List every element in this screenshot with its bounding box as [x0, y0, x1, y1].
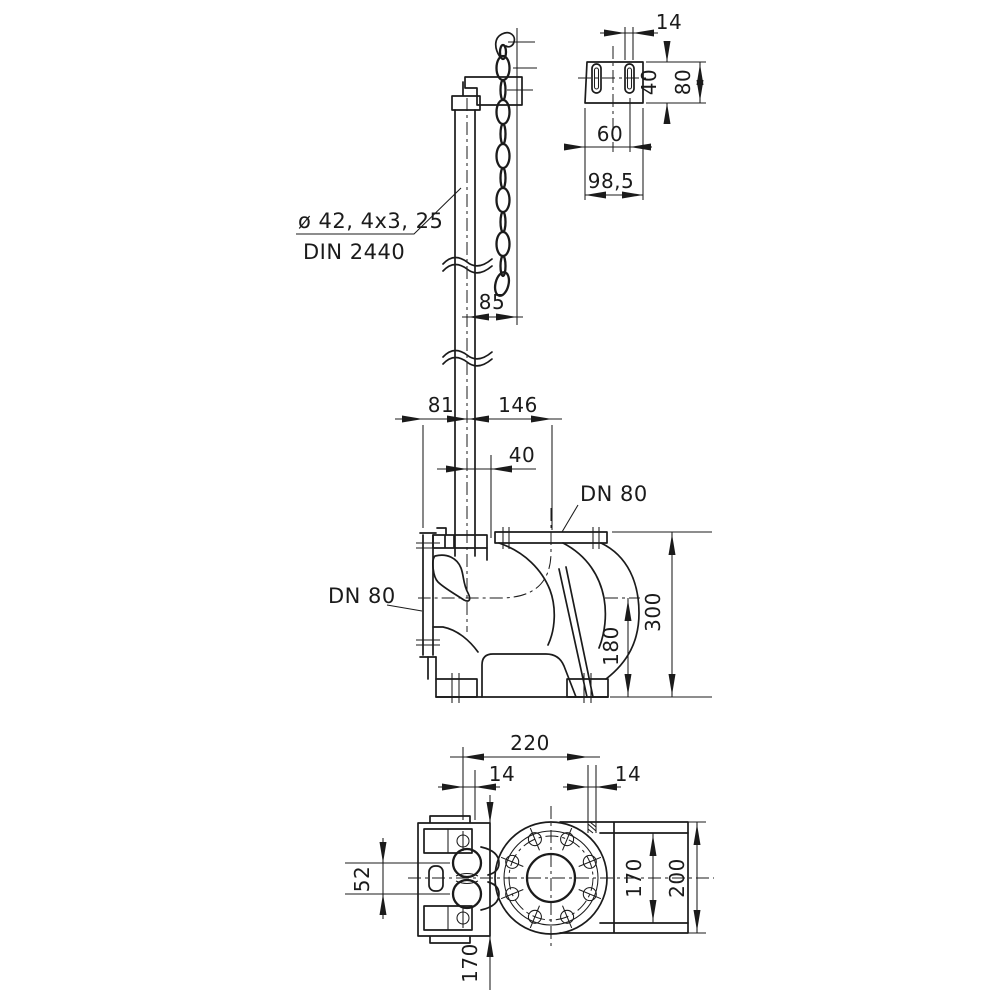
- elevation-elbow: [416, 508, 640, 703]
- chain-link: [497, 100, 510, 124]
- dim-text-14-left: 14: [489, 762, 515, 786]
- flange-labels: DN 80 DN 80: [328, 482, 648, 611]
- dim-line: [395, 419, 562, 530]
- dim-chain-offset: 85: [462, 290, 523, 317]
- bolt-tick: [501, 857, 523, 866]
- chain: [493, 45, 511, 297]
- chain-link: [501, 80, 506, 100]
- dn80-top-leader: [562, 505, 578, 532]
- dim-text-146: 146: [498, 393, 538, 417]
- dim-text-40: 40: [509, 443, 535, 467]
- chain-link: [497, 188, 510, 212]
- support-strut: [559, 567, 593, 697]
- chain-link: [497, 144, 510, 168]
- elbow-throat-curve: [499, 543, 554, 645]
- dn80-side-label: DN 80: [328, 584, 396, 608]
- foot-bolt-ticks: [452, 673, 591, 703]
- dim-heights: 180 300: [599, 532, 712, 697]
- technical-drawing: ø 42, 4x3, 25 DIN 2440 85 81 146 40: [0, 0, 1000, 1000]
- claw-beak: [433, 555, 470, 601]
- bend-centerline: [418, 508, 551, 598]
- bolt-tick: [563, 906, 572, 928]
- dim-plan-depth: 170: [458, 795, 490, 990]
- dim-pipe-offsets: 81 146: [395, 393, 562, 530]
- dim-text-14: 14: [656, 10, 682, 34]
- dim-plan-hole-left: 14: [438, 762, 515, 820]
- dim-text-220: 220: [510, 731, 550, 755]
- bolt-tick: [579, 890, 601, 899]
- plan-view: [408, 765, 714, 950]
- bolt-tick: [530, 828, 539, 850]
- chain-link: [501, 124, 506, 144]
- guide-pipe-hole: [453, 880, 481, 908]
- pipe-cap: [452, 82, 480, 110]
- guide-pipe: [455, 110, 475, 556]
- dim-text-180: 180: [599, 626, 623, 666]
- chain-link: [497, 232, 510, 256]
- pipe-spec-callout: ø 42, 4x3, 25 DIN 2440: [296, 188, 461, 264]
- pipe-standard-label: DIN 2440: [303, 240, 405, 264]
- drawing-page: ø 42, 4x3, 25 DIN 2440 85 81 146 40: [0, 0, 1000, 1000]
- elevation-guide-pipe: [443, 28, 537, 632]
- dim-plan-width: 220: [450, 731, 600, 820]
- dim-text-60: 60: [597, 122, 623, 146]
- dim-text-98-5: 98,5: [588, 169, 635, 193]
- bolt-tick: [501, 890, 523, 899]
- base-arch: [482, 654, 576, 697]
- pipe-spec-label: ø 42, 4x3, 25: [298, 209, 443, 233]
- claw-plate: [433, 528, 487, 548]
- dim-line: [600, 27, 658, 60]
- bolt-tick: [579, 857, 601, 866]
- detail-wall-bracket: 14 40 80 60 98,5: [565, 10, 706, 200]
- dn80-top-label: DN 80: [580, 482, 648, 506]
- dim-text-81: 81: [428, 393, 454, 417]
- dim-line: [450, 747, 600, 820]
- dim-text-40: 40: [637, 69, 661, 95]
- dim-text-80: 80: [671, 69, 695, 95]
- dn80-side-leader: [387, 605, 422, 611]
- base-feet: [436, 679, 608, 697]
- dim-text-170-bottom: 170: [458, 943, 482, 983]
- inlet-support: [428, 657, 436, 679]
- dim-text-52: 52: [350, 866, 374, 892]
- inlet-flange-ticks: [416, 543, 440, 645]
- dim-pipe-to-flange: 40: [437, 443, 536, 538]
- chain-link: [501, 212, 506, 232]
- top-bracket: [465, 77, 522, 105]
- bolt-tick: [563, 828, 572, 850]
- dim-text-85: 85: [479, 290, 505, 314]
- bolt-tick: [530, 906, 539, 928]
- dim-text-300: 300: [641, 592, 665, 632]
- dim-line: [437, 455, 536, 538]
- dim-text-170-right: 170: [622, 858, 646, 898]
- chain-link: [501, 168, 506, 188]
- dim-plan-hole-right: 14: [563, 762, 641, 787]
- dim-text-14-right: 14: [615, 762, 641, 786]
- dim-text-200: 200: [665, 858, 689, 898]
- inlet-flange: [420, 533, 436, 657]
